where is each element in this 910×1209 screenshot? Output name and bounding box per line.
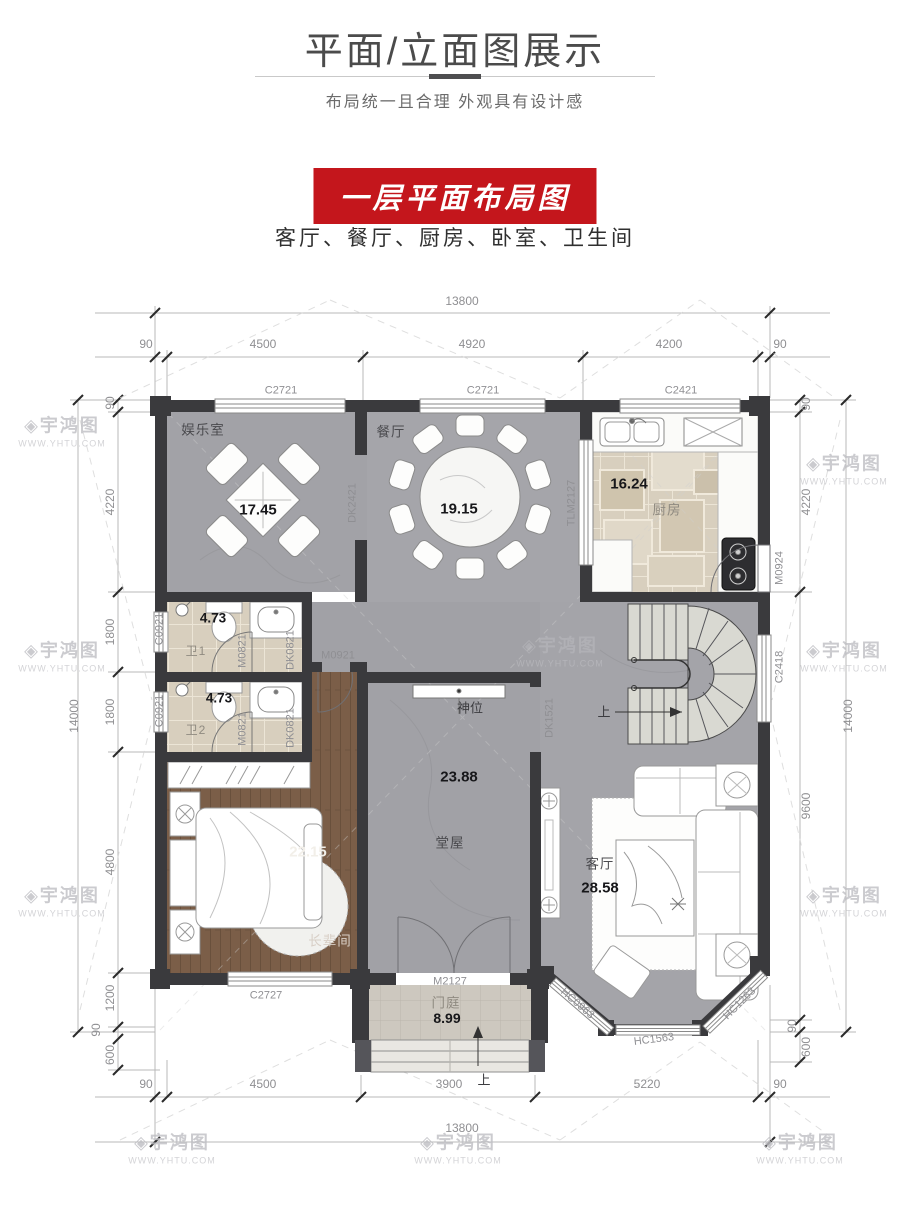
watermark-logo-icon: ◈ xyxy=(24,641,40,661)
room-bath2-name: 卫2 xyxy=(186,724,207,736)
watermark-logo-icon: ◈ xyxy=(806,454,822,474)
dim-left-0: 90 xyxy=(104,396,116,409)
window-label-c0921a: C0921 xyxy=(155,613,166,645)
room-bedroom-name: 长辈间 xyxy=(308,934,352,948)
stairs-up-label: 上 xyxy=(597,706,610,719)
dim-bottom-4: 90 xyxy=(773,1078,786,1090)
watermark-logo-icon: ◈ xyxy=(806,641,822,661)
dim-left-6: 90 xyxy=(90,1023,102,1036)
opening-label-dk0821b: DK0821 xyxy=(286,708,297,748)
watermark: ◈宇鸿图 WWW.YHTU.COM xyxy=(800,637,888,674)
watermark: ◈宇鸿图 WWW.YHTU.COM xyxy=(414,1129,502,1166)
window-label-c2721b: C2721 xyxy=(467,386,499,397)
window-label-c2727: C2727 xyxy=(250,991,282,1002)
dim-top-0: 90 xyxy=(139,338,152,350)
dim-left-7: 600 xyxy=(104,1045,116,1065)
room-dining-name: 餐厅 xyxy=(377,425,406,439)
room-hall-area: 23.88 xyxy=(440,770,478,785)
dim-right-3: 90 xyxy=(786,1019,798,1032)
entry-up-label: 上 xyxy=(477,1074,490,1087)
watermark-logo-icon: ◈ xyxy=(522,636,538,656)
window-label-c2418: C2418 xyxy=(775,651,786,683)
dim-left-3: 1800 xyxy=(104,699,116,726)
dim-bottom-1: 4500 xyxy=(250,1078,277,1090)
room-bedroom-area: 22.15 xyxy=(289,845,327,860)
door-label-m0924: M0924 xyxy=(775,551,786,585)
dim-right-0: 90 xyxy=(800,397,812,410)
opening-label-dk0821a: DK0821 xyxy=(286,630,297,670)
watermark: ◈宇鸿图 WWW.YHTU.COM xyxy=(128,1129,216,1166)
door-label-tlm2127: TLM2127 xyxy=(567,480,578,526)
dim-left-total: 14000 xyxy=(68,699,80,732)
watermark: ◈宇鸿图 WWW.YHTU.COM xyxy=(18,882,106,919)
shrine-label: 神位 xyxy=(457,702,483,715)
dim-top-2: 4920 xyxy=(459,338,486,350)
door-label-m0921: M0921 xyxy=(321,651,355,662)
watermark-logo-icon: ◈ xyxy=(134,1133,150,1153)
dim-left-4: 4800 xyxy=(104,849,116,876)
room-bath2-area: 4.73 xyxy=(206,691,232,705)
watermark-logo-icon: ◈ xyxy=(806,886,822,906)
room-bath1-area: 4.73 xyxy=(200,611,226,625)
tv-console xyxy=(538,788,560,918)
wardrobe xyxy=(168,762,310,788)
bed xyxy=(170,792,348,956)
room-living-name: 客厅 xyxy=(586,857,615,871)
room-entertainment-area: 17.45 xyxy=(239,503,277,518)
door-label-m0821a: M0821 xyxy=(238,634,249,668)
door-label-m2127: M2127 xyxy=(433,977,467,988)
room-kitchen-name: 厨房 xyxy=(653,503,682,517)
dim-left-2: 1800 xyxy=(104,619,116,646)
room-kitchen-area: 16.24 xyxy=(610,477,648,492)
watermark-logo-icon: ◈ xyxy=(24,416,40,436)
dim-top-3: 4200 xyxy=(656,338,683,350)
room-hall-name: 堂屋 xyxy=(436,836,465,850)
room-living-area: 28.58 xyxy=(581,881,619,896)
watermark: ◈宇鸿图 WWW.YHTU.COM xyxy=(18,412,106,449)
dim-bottom-0: 90 xyxy=(139,1078,152,1090)
door-label-m0821b: M0821 xyxy=(238,712,249,746)
window-label-c2721a: C2721 xyxy=(265,386,297,397)
dim-left-1: 4220 xyxy=(104,489,116,516)
dim-bottom-3: 5220 xyxy=(634,1078,661,1090)
watermark: ◈宇鸿图 WWW.YHTU.COM xyxy=(800,450,888,487)
dim-right-4: 600 xyxy=(800,1037,812,1057)
dim-bottom-2: 3900 xyxy=(436,1078,463,1090)
dim-top-total: 13800 xyxy=(445,295,478,307)
room-dining-area: 19.15 xyxy=(440,502,478,517)
watermark: ◈宇鸿图 WWW.YHTU.COM xyxy=(516,632,604,669)
watermark-logo-icon: ◈ xyxy=(762,1133,778,1153)
window-label-c0921b: C0921 xyxy=(155,695,166,727)
dim-right-1: 4220 xyxy=(800,489,812,516)
room-entertainment-name: 娱乐室 xyxy=(181,423,225,437)
room-bath1-name: 卫1 xyxy=(186,645,207,657)
room-foyer-area: 8.99 xyxy=(433,1011,460,1025)
watermark: ◈宇鸿图 WWW.YHTU.COM xyxy=(756,1129,844,1166)
watermark: ◈宇鸿图 WWW.YHTU.COM xyxy=(18,637,106,674)
watermark: ◈宇鸿图 WWW.YHTU.COM xyxy=(800,882,888,919)
dim-top-1: 4500 xyxy=(250,338,277,350)
dim-left-5: 1200 xyxy=(104,985,116,1012)
watermark-logo-icon: ◈ xyxy=(24,886,40,906)
floor-plan-page: 平面/立面图展示 布局统一且合理 外观具有设计感 一层平面布局图 客厅、餐厅、厨… xyxy=(0,0,910,1209)
room-foyer-name: 门庭 xyxy=(432,996,461,1010)
dim-right-2: 9600 xyxy=(800,793,812,820)
floor-plan-svg xyxy=(0,0,910,1209)
opening-label-dk2421: DK2421 xyxy=(348,483,359,523)
window-label-c2421: C2421 xyxy=(665,386,697,397)
dim-top-4: 90 xyxy=(773,338,786,350)
dim-right-total: 14000 xyxy=(842,699,854,732)
watermark-logo-icon: ◈ xyxy=(420,1133,436,1153)
opening-label-dk1521: DK1521 xyxy=(545,698,556,738)
